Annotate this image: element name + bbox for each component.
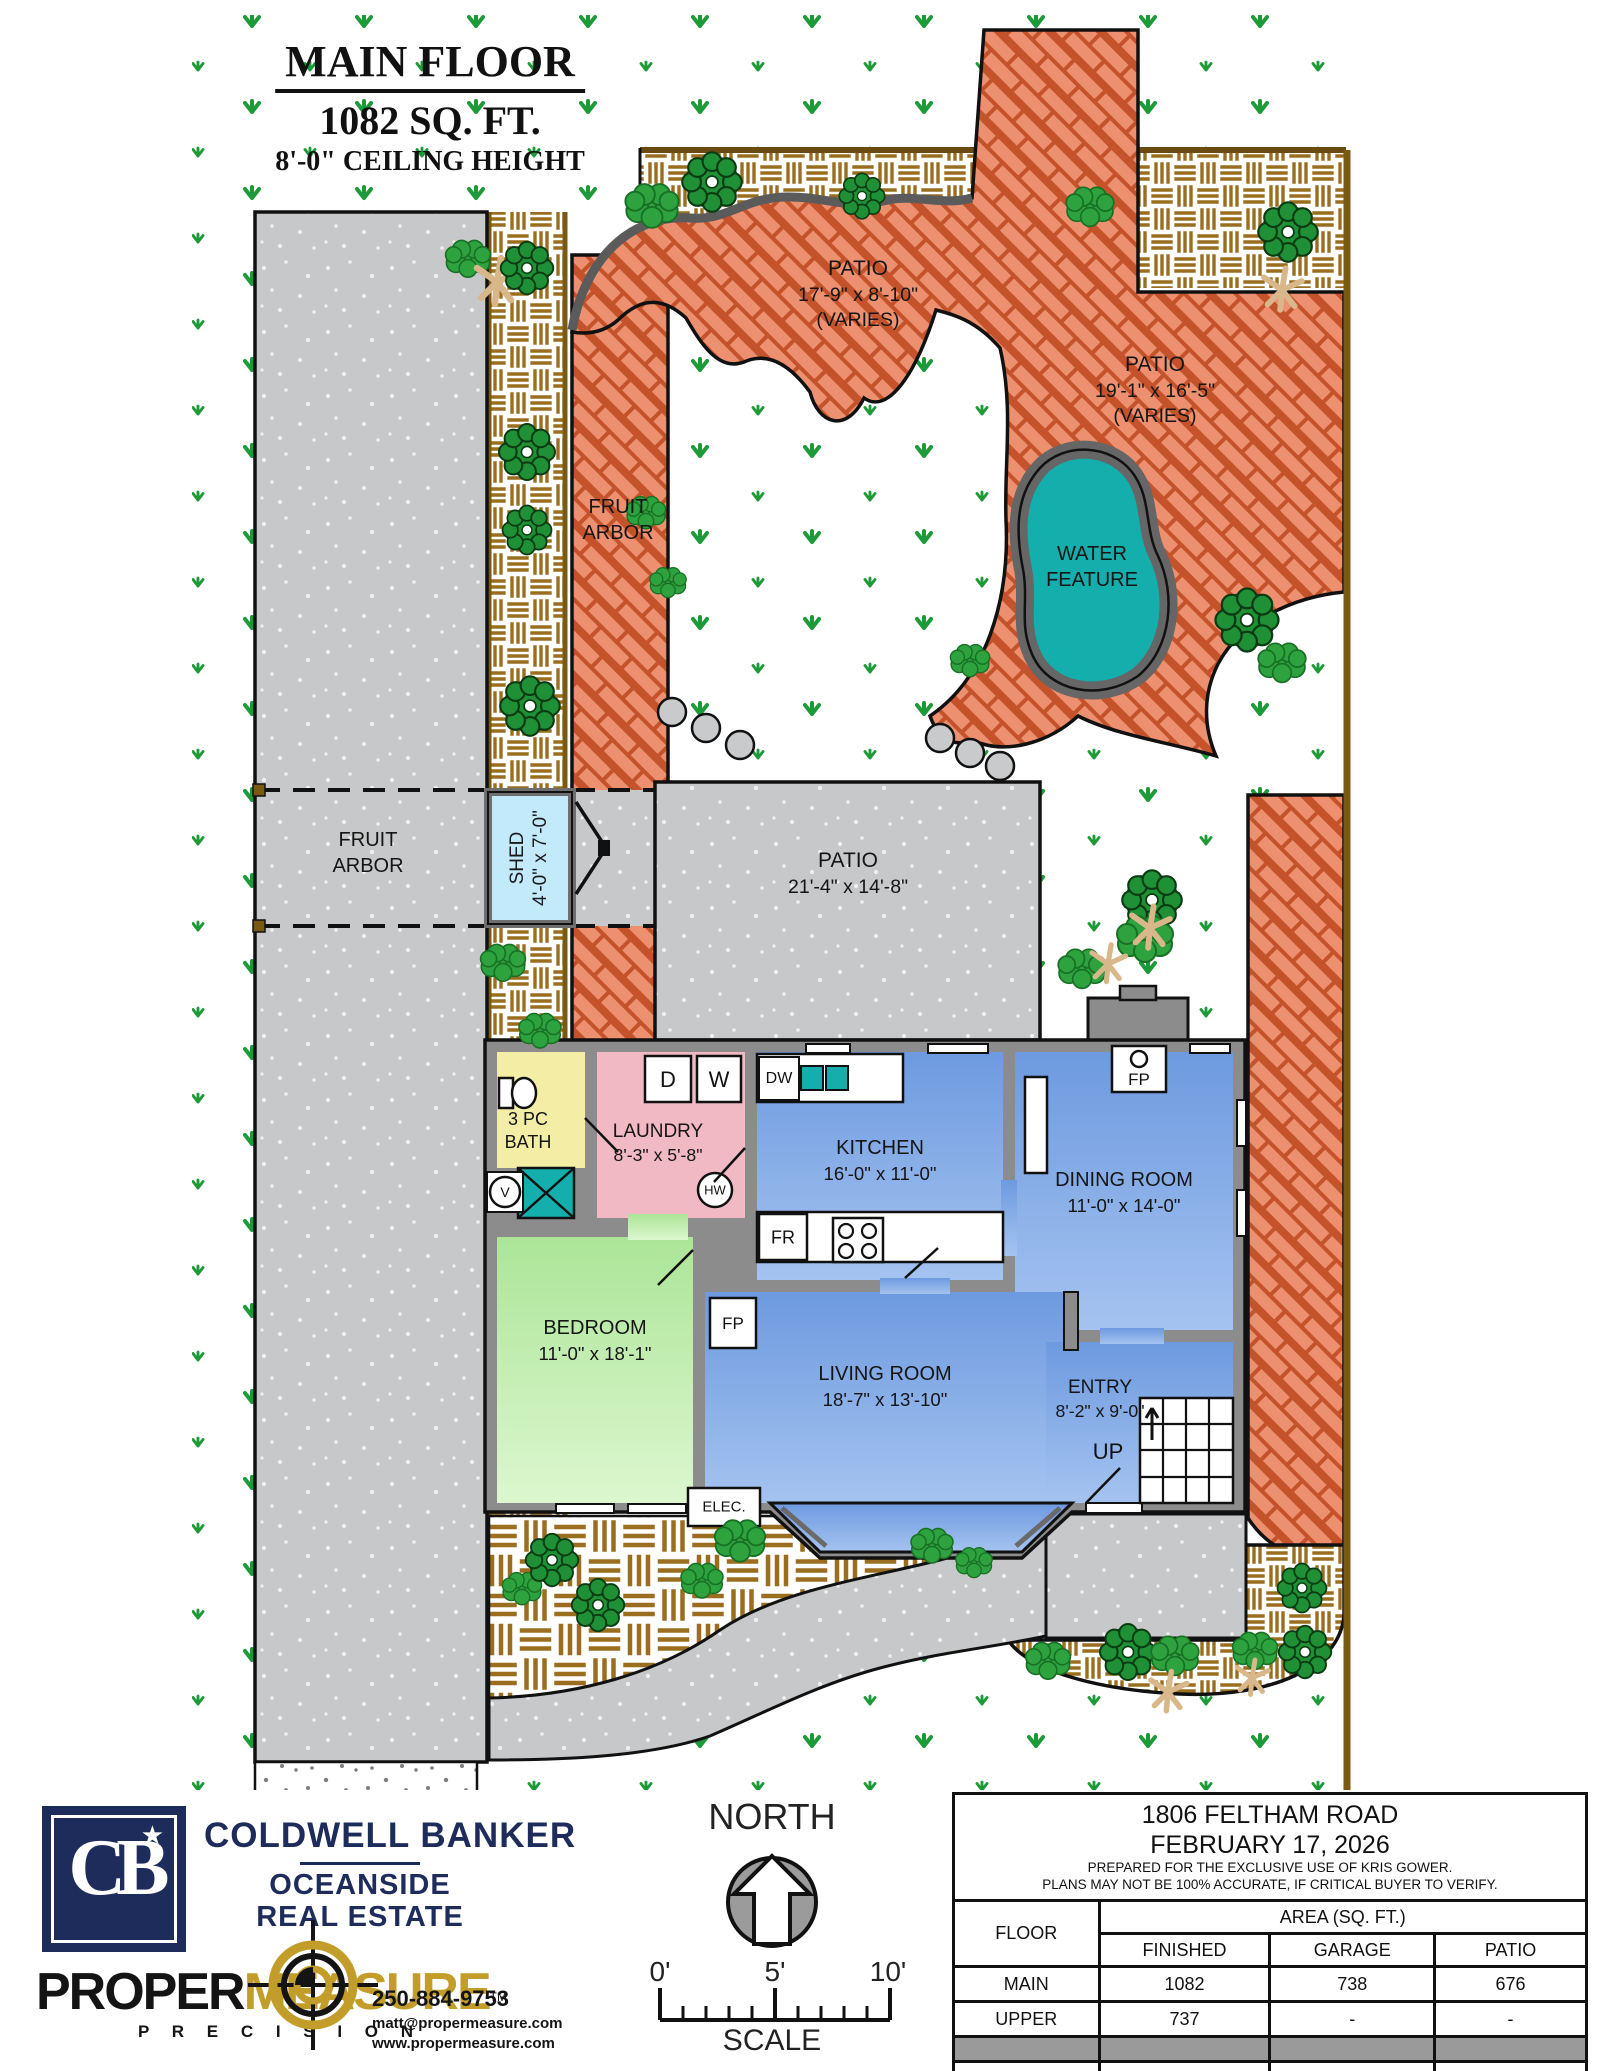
fruit-arbor-court-label: FRUIT ARBOR	[332, 828, 403, 879]
stairs	[1140, 1398, 1233, 1503]
propermeasure-target-icon	[248, 1920, 378, 2050]
entry-porch	[1046, 1514, 1246, 1638]
washer-label: W	[709, 1067, 730, 1093]
living-label: LIVING ROOM 18'-7" x 13'-10"	[818, 1362, 951, 1411]
plan-title-line3: 8'-0" CEILING HEIGHT	[275, 146, 585, 178]
col-header-finished: FINISHED	[1099, 1934, 1270, 1967]
fp-dining-label: FP	[1128, 1070, 1150, 1090]
email-address: matt@propermeasure.com	[372, 2014, 563, 2034]
plan-title-line1: MAIN FLOOR	[275, 36, 585, 93]
fridge-label: FR	[771, 1228, 795, 1249]
coldwell-banker-wordmark: COLDWELL BANKER	[204, 1816, 576, 1856]
shed-label: SHED 4'-0" x 7'-0"	[507, 810, 553, 906]
cb-logo-letters: CB	[42, 1828, 186, 1908]
disclaimer-line1: PREPARED FOR THE EXCLUSIVE USE OF KRIS G…	[957, 1860, 1583, 1877]
disclaimer-line2: PLANS MAY NOT BE 100% ACCURATE, IF CRITI…	[957, 1877, 1583, 1894]
sink-right	[826, 1066, 848, 1090]
patio-mid-concrete	[655, 782, 1040, 1040]
property-address: 1806 FELTHAM ROAD	[957, 1800, 1583, 1830]
gravel-strip	[255, 1762, 477, 1790]
table-row-upper: UPPER 737 - -	[954, 2002, 1587, 2037]
chimney	[1088, 998, 1188, 1044]
kitchen-label: KITCHEN 16'-0" x 11'-0"	[824, 1136, 937, 1185]
dryer-label: D	[660, 1067, 676, 1093]
driveway	[255, 212, 487, 1790]
fruit-arbor-court	[253, 784, 710, 932]
col-header-patio: PATIO	[1435, 1934, 1587, 1967]
plan-date: FEBRUARY 17, 2026	[957, 1830, 1583, 1860]
coldwell-banker-rule	[300, 1862, 420, 1865]
dishwasher-label: DW	[766, 1070, 793, 1088]
dining-label: DINING ROOM 11'-0" x 14'-0"	[1055, 1168, 1193, 1217]
brick-strip-right	[1248, 795, 1344, 1560]
plan-title: MAIN FLOOR 1082 SQ. FT. 8'-0" CEILING HE…	[275, 36, 585, 178]
propermeasure-contact: 250-884-9753 matt@propermeasure.com www.…	[372, 1984, 563, 2054]
sink-left	[801, 1066, 823, 1090]
patio-mid-label: PATIO 21'-4" x 14'-8"	[788, 848, 908, 900]
patio-right-label: PATIO 19'-1" x 16'-5" (VARIES)	[1095, 352, 1215, 429]
bath-label: 3 PC BATH	[505, 1108, 552, 1154]
coldwell-banker-logo: CB ★	[42, 1806, 186, 1952]
elec-label: ELEC.	[702, 1499, 745, 1516]
fruit-arbor-path-label: FRUIT ARBOR	[582, 495, 653, 546]
room-bedroom	[497, 1237, 693, 1503]
water-feature-label: WATER FEATURE	[1046, 542, 1138, 593]
col-header-floor: FLOOR	[954, 1901, 1100, 1967]
fp-living-label: FP	[722, 1314, 744, 1334]
patio-upper-label: PATIO 17'-9" x 8'-10" (VARIES)	[798, 256, 918, 333]
table-row-total: TOTAL 1819 738 676	[954, 2062, 1587, 2071]
bedroom-label: BEDROOM 11'-0" x 18'-1"	[539, 1316, 652, 1365]
laundry-label: LAUNDRY 8'-3" x 5'-8"	[613, 1120, 703, 1167]
col-header-garage: GARAGE	[1270, 1934, 1435, 1967]
north-arrow-icon	[722, 1852, 822, 1952]
hot-water-label: HW	[704, 1183, 726, 1198]
scale-bar	[645, 1978, 905, 2024]
title-block-cell: 1806 FELTHAM ROAD FEBRUARY 17, 2026 PREP…	[954, 1794, 1587, 1901]
floor-plan-page: MAIN FLOOR 1082 SQ. FT. 8'-0" CEILING HE…	[0, 0, 1600, 2071]
col-header-area: AREA (SQ. FT.)	[1099, 1901, 1586, 1934]
peninsula-wall	[1025, 1077, 1047, 1173]
cb-logo-star-icon: ★	[141, 1820, 164, 1851]
plan-title-line2: 1082 SQ. FT.	[275, 97, 585, 144]
website-url: www.propermeasure.com	[372, 2034, 563, 2054]
info-table: 1806 FELTHAM ROAD FEBRUARY 17, 2026 PREP…	[952, 1792, 1588, 2071]
scale-label: SCALE	[723, 2024, 821, 2058]
phone-number: 250-884-9753	[372, 1984, 563, 2014]
up-label: UP	[1093, 1439, 1124, 1465]
vanity-label: V	[500, 1184, 509, 1200]
table-row-main: MAIN 1082 738 676	[954, 1967, 1587, 2002]
north-label: NORTH	[708, 1796, 835, 1838]
table-row-spacer	[954, 2037, 1587, 2062]
entry-label: ENTRY 8'-2" x 9'-0"	[1056, 1376, 1145, 1423]
toilet-bowl	[512, 1078, 536, 1108]
